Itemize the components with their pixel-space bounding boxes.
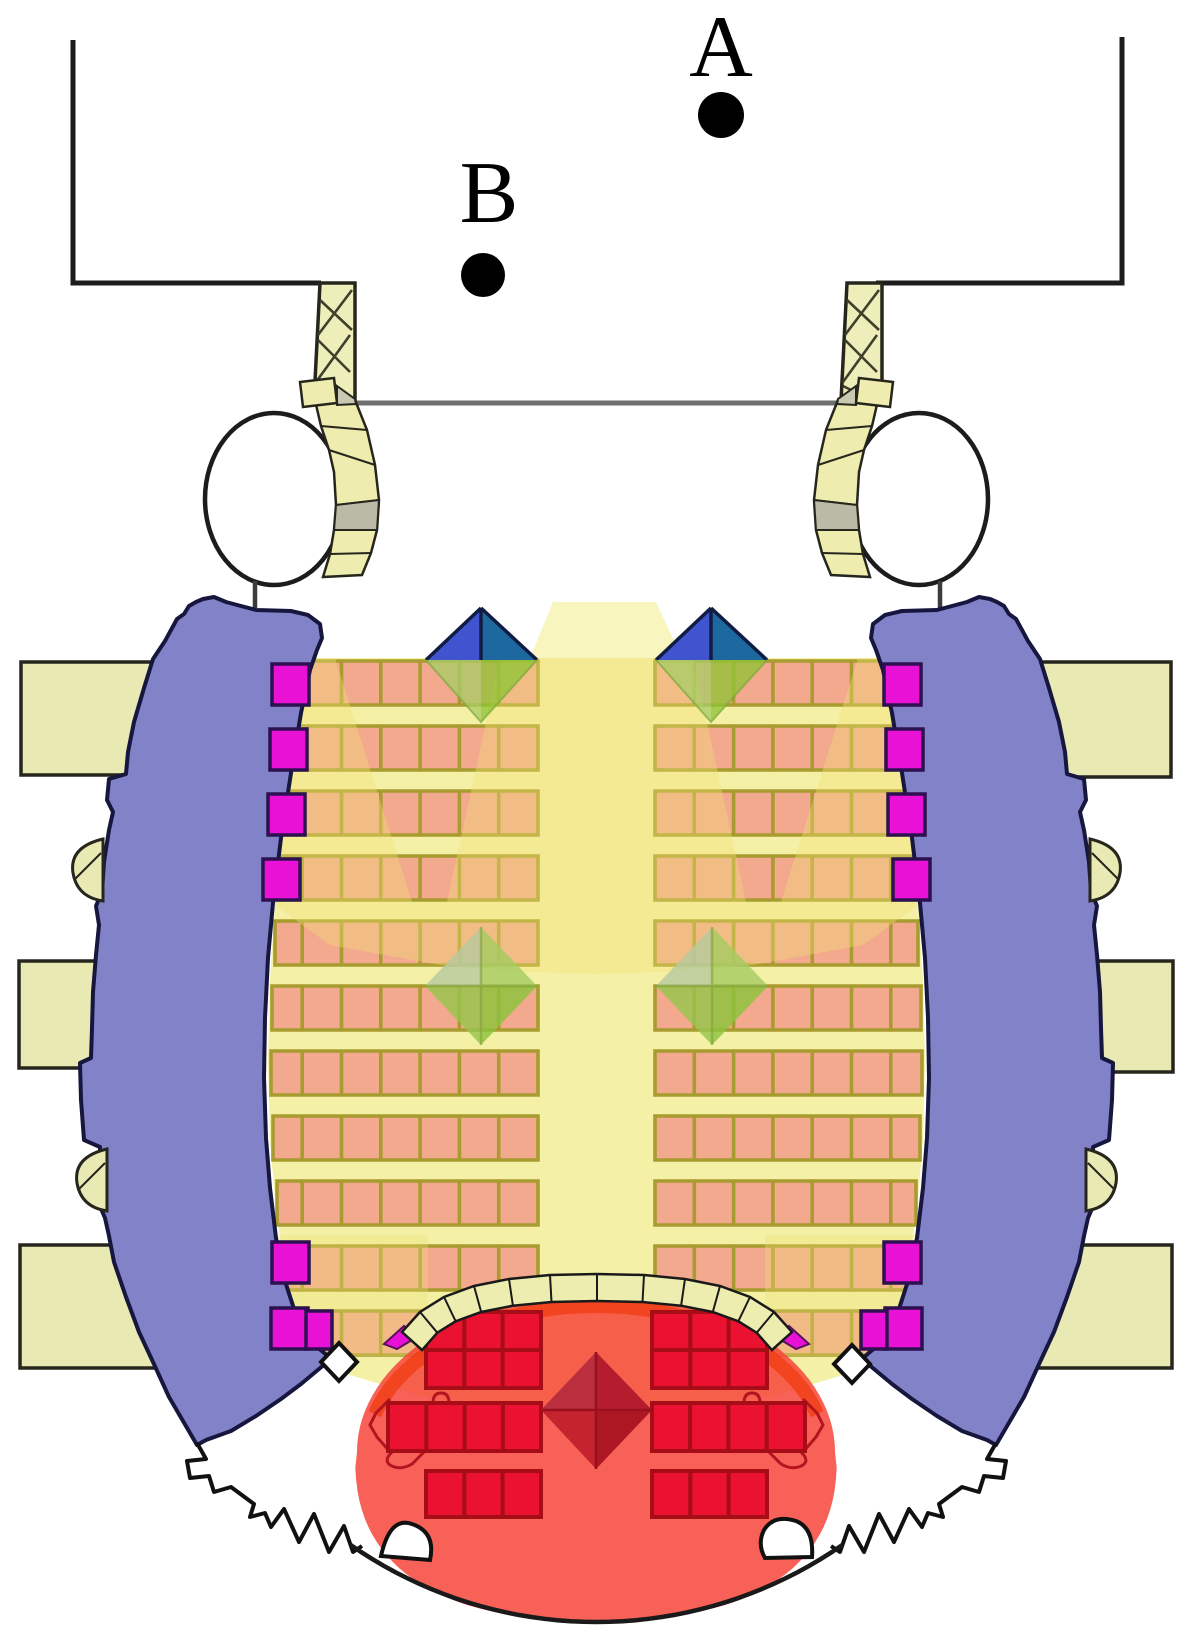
svg-text:A: A xyxy=(689,0,753,96)
svg-text:B: B xyxy=(460,145,519,242)
